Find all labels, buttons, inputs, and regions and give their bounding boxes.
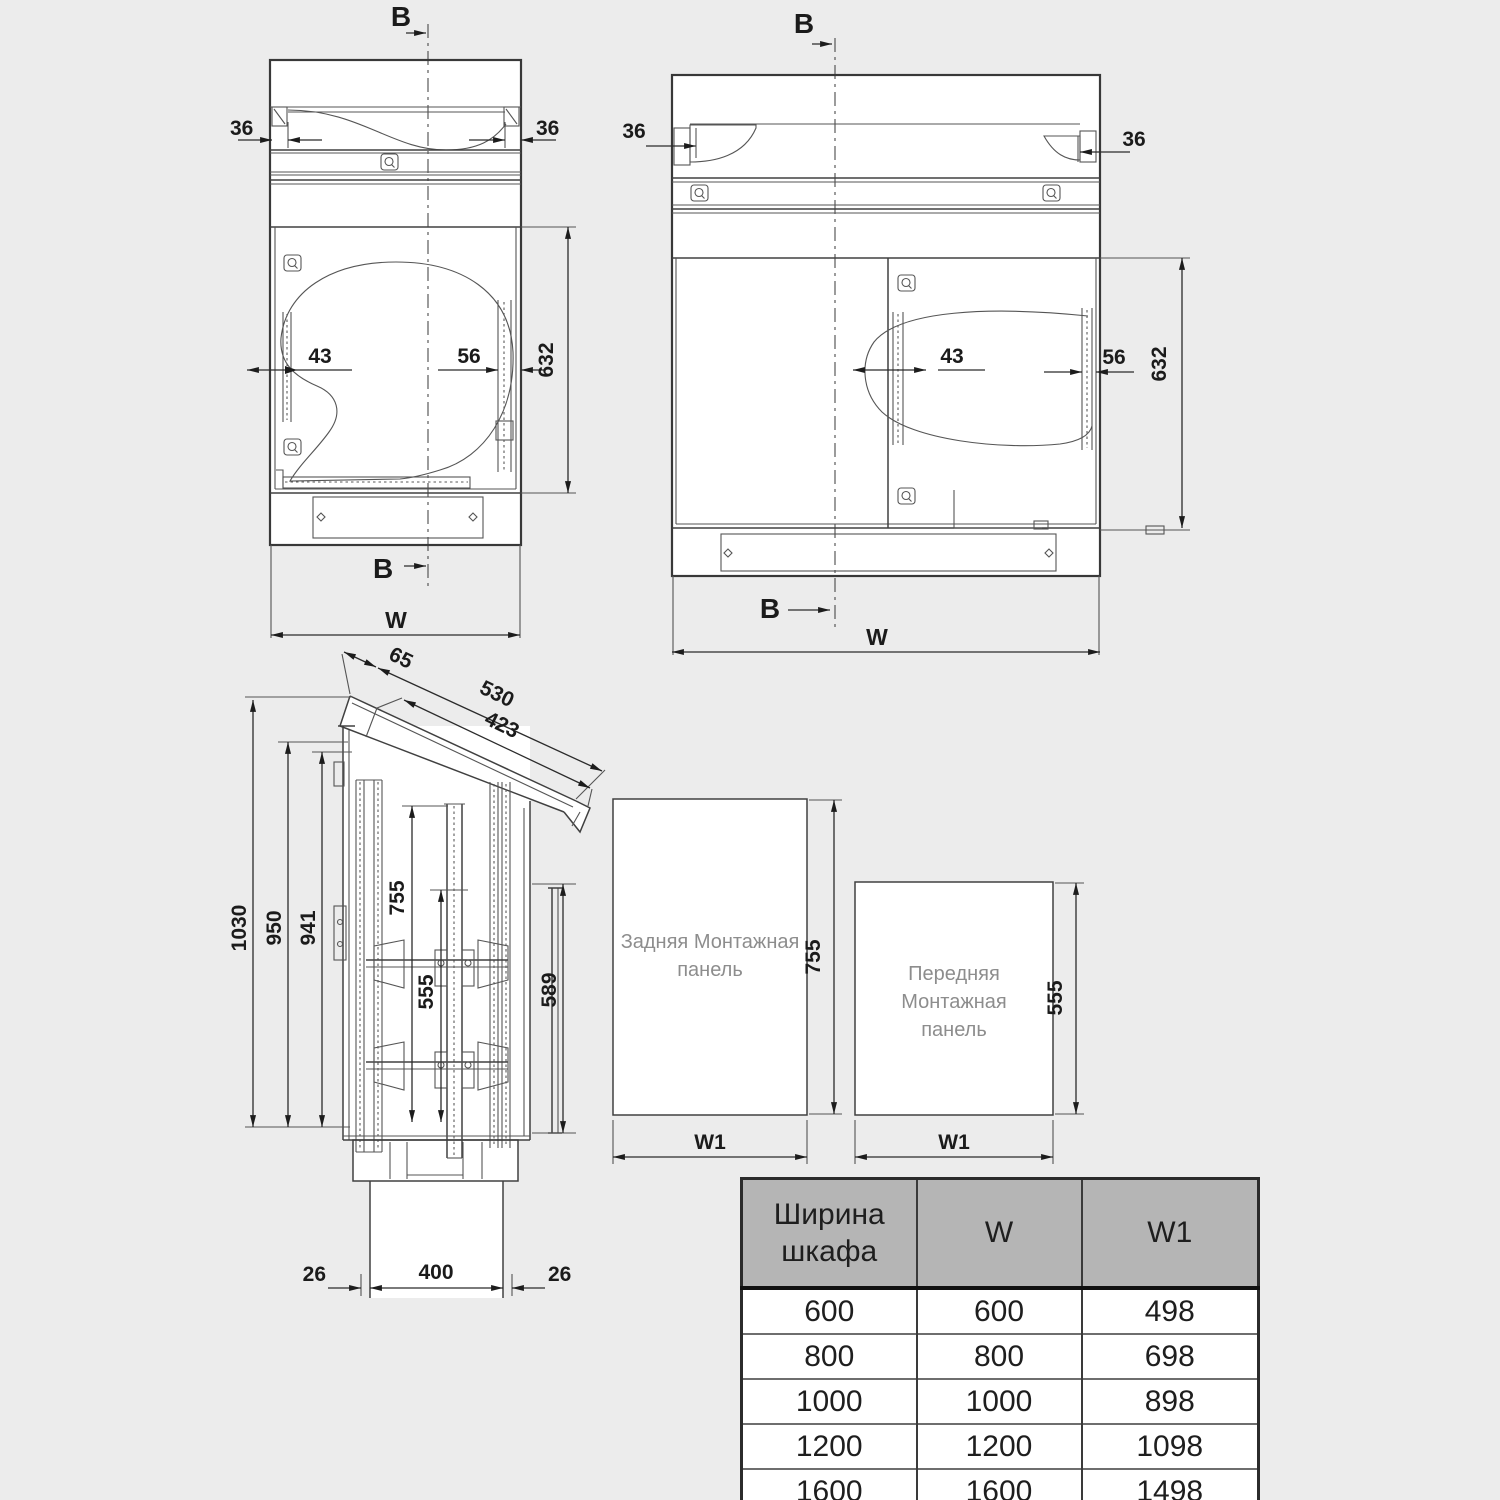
cell: 600: [742, 1288, 917, 1334]
dim-1030: 1030: [228, 697, 352, 1127]
svg-text:36: 36: [230, 117, 253, 140]
table-row: 1000 1000 898: [742, 1379, 1259, 1424]
svg-text:36: 36: [622, 120, 645, 143]
cell: 1498: [1082, 1469, 1259, 1500]
cell: 898: [1082, 1379, 1259, 1424]
svg-text:65: 65: [385, 643, 416, 674]
svg-text:400: 400: [418, 1261, 453, 1284]
svg-text:56: 56: [457, 345, 480, 368]
table-row: 600 600 498: [742, 1288, 1259, 1334]
dim-w1-front: W1: [855, 1120, 1053, 1164]
rear-panel-label: Задняя Монтажная панель: [615, 928, 805, 984]
header-w: W: [917, 1179, 1082, 1289]
cell: 800: [742, 1334, 917, 1379]
svg-text:W: W: [866, 624, 888, 650]
cabinet-front-view: B 36 36 43 56 632: [622, 8, 1190, 655]
section-mark-b-bottom: B: [760, 593, 830, 624]
cell: 1600: [742, 1469, 917, 1500]
svg-text:632: 632: [1148, 346, 1171, 381]
table-row: 1200 1200 1098: [742, 1424, 1259, 1469]
header-cabinet-width: Ширина шкафа: [742, 1179, 917, 1289]
svg-text:950: 950: [263, 910, 286, 945]
svg-text:755: 755: [386, 880, 409, 915]
table-row: 1600 1600 1498: [742, 1469, 1259, 1500]
cell: 800: [917, 1334, 1082, 1379]
svg-text:632: 632: [535, 342, 558, 377]
section-mark-b-top: B: [794, 8, 832, 44]
cell: 1000: [917, 1379, 1082, 1424]
cell: 1200: [742, 1424, 917, 1469]
svg-text:W1: W1: [938, 1131, 970, 1154]
svg-text:B: B: [373, 553, 393, 584]
svg-text:W: W: [385, 607, 407, 633]
cell: 600: [917, 1288, 1082, 1334]
cabinet-back-view: B 36 36 43 56 632: [230, 1, 576, 638]
table-header-row: Ширина шкафа W W1: [742, 1179, 1259, 1289]
svg-text:26: 26: [303, 1263, 326, 1286]
header-w1: W1: [1082, 1179, 1259, 1289]
dim-w: W: [672, 624, 1100, 652]
svg-text:755: 755: [802, 939, 825, 974]
svg-text:43: 43: [308, 345, 331, 368]
svg-text:589: 589: [538, 972, 561, 1007]
dim-632: 632: [521, 227, 576, 493]
cell: 498: [1082, 1288, 1259, 1334]
width-table: Ширина шкафа W W1 600 600 498 800 800 69…: [740, 1177, 1260, 1500]
svg-text:555: 555: [1044, 980, 1067, 1015]
cell: 698: [1082, 1334, 1259, 1379]
dim-w: W: [271, 607, 520, 635]
section-mark-b-bottom: B: [373, 553, 426, 584]
mounting-rail-right: [496, 300, 513, 472]
cell: 1000: [742, 1379, 917, 1424]
svg-text:B: B: [794, 8, 814, 39]
svg-text:36: 36: [536, 117, 559, 140]
dim-589: 589: [532, 884, 576, 1133]
dim-w1-rear: W1: [613, 1120, 807, 1164]
front-panel-label: Передняя Монтажная панель: [866, 960, 1042, 1044]
svg-text:36: 36: [1122, 128, 1145, 151]
svg-text:1030: 1030: [228, 905, 251, 952]
cabinet-side-section-view: 65 530 423 1030 950 941: [228, 643, 605, 1298]
svg-text:555: 555: [415, 974, 438, 1009]
dim-632: 632: [1100, 258, 1190, 534]
section-mark-b-top: B: [391, 1, 426, 33]
svg-text:941: 941: [297, 910, 320, 945]
svg-text:B: B: [760, 593, 780, 624]
rear-panel-edge: [548, 888, 562, 1133]
cell: 1098: [1082, 1424, 1259, 1469]
svg-text:W1: W1: [694, 1131, 726, 1154]
cell: 1600: [917, 1469, 1082, 1500]
svg-text:26: 26: [548, 1263, 571, 1286]
dim-755-panel: 755: [802, 800, 842, 1114]
svg-text:43: 43: [940, 345, 963, 368]
table-row: 800 800 698: [742, 1334, 1259, 1379]
drawing-canvas: B 36 36 43 56 632: [0, 0, 1500, 1500]
svg-text:530: 530: [476, 676, 518, 712]
cell: 1200: [917, 1424, 1082, 1469]
svg-text:56: 56: [1102, 346, 1125, 369]
svg-text:B: B: [391, 1, 411, 32]
